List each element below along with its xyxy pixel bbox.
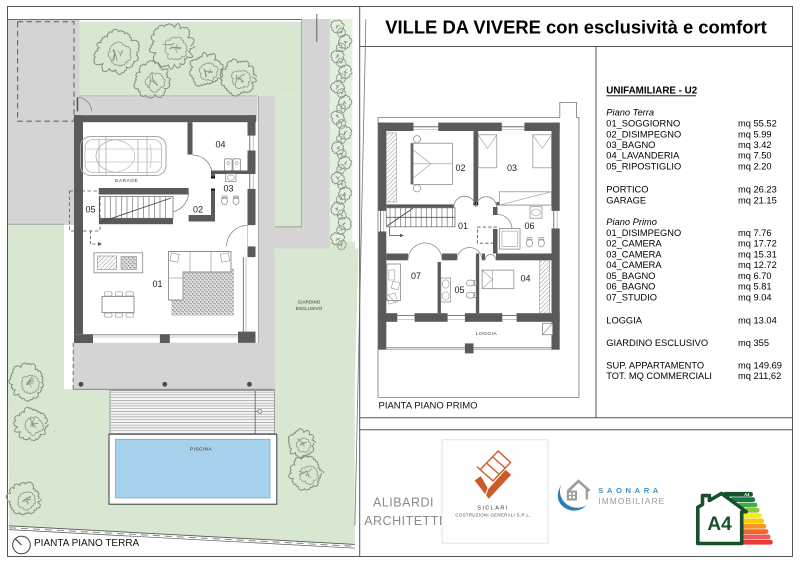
svg-text:05: 05	[455, 285, 465, 295]
svg-text:05: 05	[86, 205, 96, 215]
svg-text:mq 2.20: mq 2.20	[738, 161, 772, 171]
svg-text:GARAGE: GARAGE	[606, 195, 646, 205]
svg-text:mq 211,62: mq 211,62	[738, 371, 781, 381]
svg-text:02: 02	[193, 205, 203, 215]
svg-text:mq 5.99: mq 5.99	[738, 129, 772, 139]
svg-text:mq 6.70: mq 6.70	[738, 271, 772, 281]
svg-text:GIARDINO ESCLUSIVO: GIARDINO ESCLUSIVO	[606, 338, 708, 348]
svg-text:COSTRUZIONI GENERALI S.R.L.: COSTRUZIONI GENERALI S.R.L.	[455, 512, 530, 517]
svg-text:SUP. APPARTAMENTO: SUP. APPARTAMENTO	[606, 361, 704, 371]
svg-text:Piano Terra: Piano Terra	[606, 108, 654, 118]
svg-text:PORTICO: PORTICO	[606, 185, 648, 195]
svg-text:ESCLUSIVO: ESCLUSIVO	[296, 306, 323, 311]
svg-text:mq 7.76: mq 7.76	[738, 228, 772, 238]
svg-text:mq 55.52: mq 55.52	[738, 119, 777, 129]
svg-text:04: 04	[521, 274, 531, 284]
svg-text:PISCINA: PISCINA	[190, 447, 212, 453]
svg-text:mq 3.42: mq 3.42	[738, 140, 772, 150]
svg-text:01: 01	[458, 221, 468, 231]
svg-text:PIANTA PIANO PRIMO: PIANTA PIANO PRIMO	[379, 401, 478, 412]
svg-text:mq 149.69: mq 149.69	[738, 361, 782, 371]
svg-text:mq 9.04: mq 9.04	[738, 292, 772, 302]
svg-text:GIARDINO: GIARDINO	[298, 300, 321, 305]
svg-text:mq 26.23: mq 26.23	[738, 185, 777, 195]
svg-text:04: 04	[216, 140, 226, 150]
svg-text:03: 03	[224, 184, 234, 194]
svg-text:04_CAMERA: 04_CAMERA	[606, 260, 662, 270]
svg-text:03_BAGNO: 03_BAGNO	[606, 140, 655, 150]
svg-text:mq 13.04: mq 13.04	[738, 316, 777, 326]
svg-text:LOGGIA: LOGGIA	[606, 316, 642, 326]
svg-text:mq 21.15: mq 21.15	[738, 195, 777, 205]
svg-text:A4: A4	[744, 492, 750, 497]
svg-text:VILLE DA VIVERE con esclusivit: VILLE DA VIVERE con esclusività e comfor…	[385, 17, 767, 38]
svg-text:01_SOGGIORNO: 01_SOGGIORNO	[606, 119, 680, 129]
svg-text:SICLARI: SICLARI	[477, 506, 509, 512]
svg-text:06_BAGNO: 06_BAGNO	[606, 282, 655, 292]
svg-text:02_DISIMPEGNO: 02_DISIMPEGNO	[606, 129, 681, 139]
svg-text:04_LAVANDERIA: 04_LAVANDERIA	[606, 151, 680, 161]
svg-text:07: 07	[411, 271, 421, 281]
svg-text:06: 06	[525, 221, 535, 231]
svg-text:03_CAMERA: 03_CAMERA	[606, 250, 662, 260]
svg-text:UNIFAMILIARE - U2: UNIFAMILIARE - U2	[606, 86, 697, 97]
svg-text:GARAGE: GARAGE	[115, 178, 139, 184]
svg-text:mq 15.31: mq 15.31	[738, 250, 777, 260]
svg-text:01_DISIMPEGNO: 01_DISIMPEGNO	[606, 228, 681, 238]
svg-text:01: 01	[153, 279, 163, 289]
svg-text:Piano Primo: Piano Primo	[606, 217, 657, 227]
svg-text:05_BAGNO: 05_BAGNO	[606, 271, 655, 281]
svg-text:07_STUDIO: 07_STUDIO	[606, 292, 657, 302]
svg-text:ALIBARDI: ALIBARDI	[373, 496, 434, 510]
svg-text:TOT. MQ COMMERCIALI: TOT. MQ COMMERCIALI	[606, 371, 712, 381]
svg-text:LOGGIA: LOGGIA	[476, 331, 498, 337]
svg-text:SAONARA: SAONARA	[598, 486, 662, 495]
svg-text:02_CAMERA: 02_CAMERA	[606, 239, 662, 249]
svg-text:PIANTA PIANO TERRA: PIANTA PIANO TERRA	[34, 538, 140, 549]
svg-text:ARCHITETTI: ARCHITETTI	[364, 514, 443, 528]
svg-text:mq 7.50: mq 7.50	[738, 151, 772, 161]
svg-text:A4: A4	[707, 514, 732, 535]
svg-text:mq 355: mq 355	[738, 338, 769, 348]
svg-text:03: 03	[507, 163, 517, 173]
svg-text:mq 5.81: mq 5.81	[738, 282, 772, 292]
svg-text:mq 17.72: mq 17.72	[738, 239, 777, 249]
svg-text:mq 12.72: mq 12.72	[738, 260, 777, 270]
svg-text:IMMOBILIARE: IMMOBILIARE	[598, 496, 665, 506]
svg-text:05_RIPOSTIGLIO: 05_RIPOSTIGLIO	[606, 161, 681, 171]
svg-text:02: 02	[456, 163, 466, 173]
